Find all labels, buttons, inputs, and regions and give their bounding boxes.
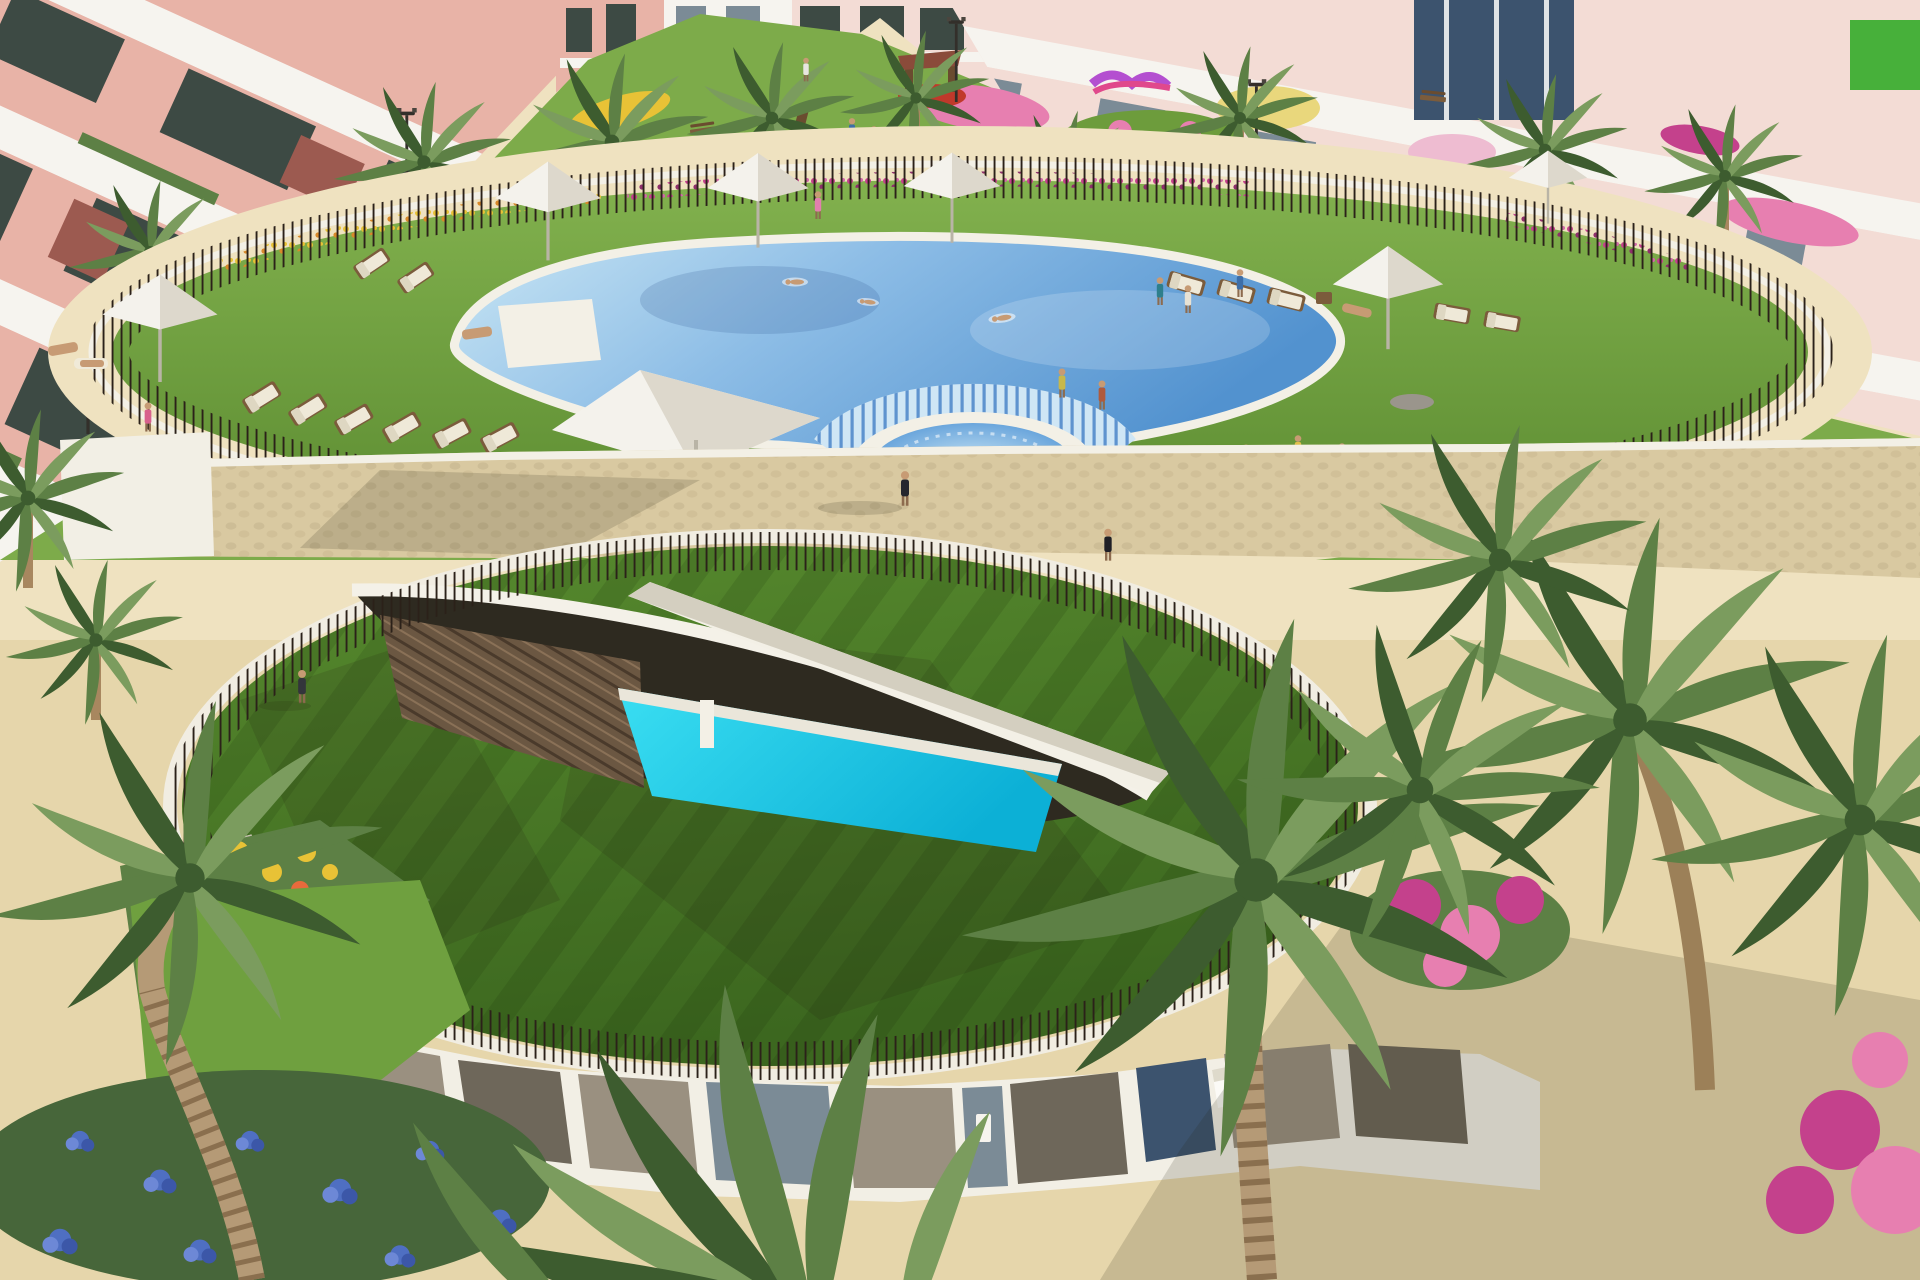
- render-viewport: [0, 0, 1920, 1280]
- white-wall-left: [60, 432, 214, 560]
- resort-render: [0, 0, 1920, 1280]
- swimmer: [782, 278, 808, 287]
- beam-support: [700, 700, 714, 748]
- sun-deck: [498, 299, 601, 368]
